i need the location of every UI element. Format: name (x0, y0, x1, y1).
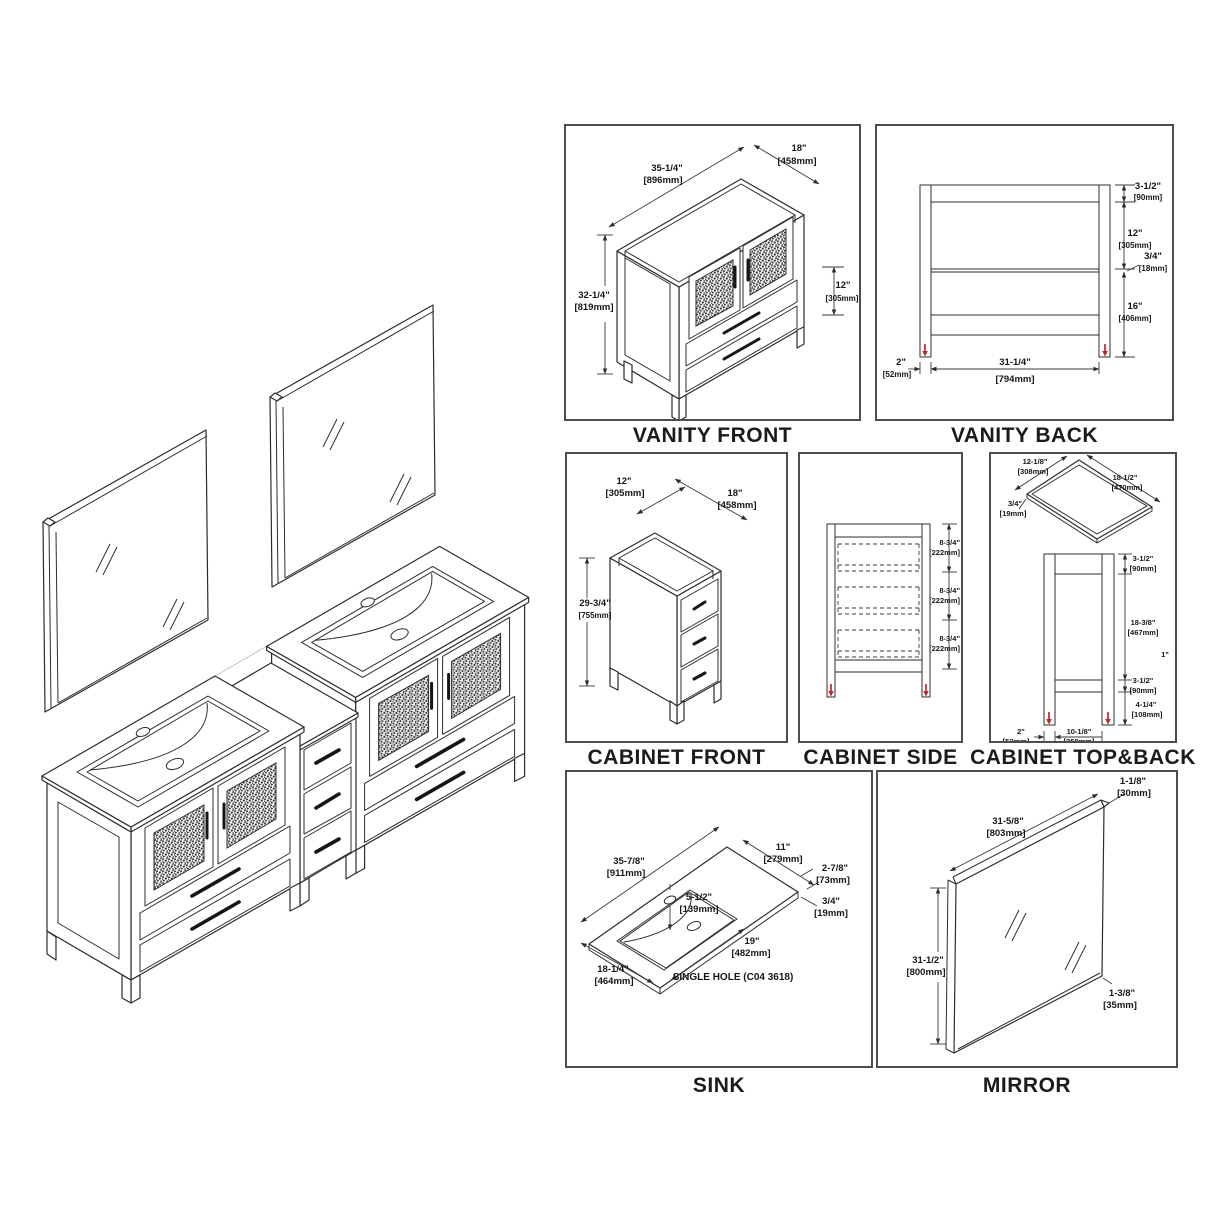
dim-mir-t-mm: [30mm] (1117, 788, 1151, 799)
panel-cabinet-side: 8-3/4" [222mm] 8-3/4" [222mm] 8-3/4" [22… (798, 452, 963, 743)
dim-sink-r-in: 2-7/8" (822, 863, 848, 874)
dim-cs-d2-mm: [222mm] (929, 596, 960, 605)
panel-cabinet-front: 12" [305mm] 18" [458mm] 29-3/4" [755mm] (565, 452, 788, 743)
dim-vf-drawer-mm: [305mm] (826, 294, 859, 303)
dim-mir-f-in: 1-3/8" (1109, 988, 1135, 999)
dim-cf-height-in: 29-3/4" (579, 598, 610, 609)
dim-ctb-stray: 1" (1161, 650, 1169, 659)
dim-ctb-topw-in: 12-1/8" (1023, 457, 1048, 466)
vanity-front-box (617, 179, 804, 419)
dim-sink-bw-mm: [482mm] (731, 948, 770, 959)
dim-sink-r-mm: [73mm] (816, 875, 850, 886)
dim-vb-top-in: 3-1/2" (1135, 181, 1161, 192)
dim-sink-f-mm: [139mm] (679, 904, 718, 915)
dim-cs-d2-in: 8-3/4" (939, 586, 960, 595)
dim-ctb-bspan-in: 10-1/8" (1067, 727, 1092, 736)
dim-ctb-btop-mm: [90mm] (1130, 564, 1157, 573)
mirror-left (43, 430, 208, 712)
dim-vf-depth-mm: [458mm] (777, 156, 816, 167)
dim-cs-d3-in: 8-3/4" (939, 634, 960, 643)
mirror-drawing: 1-1/8" [30mm] 31-5/8" [803mm] 31-1/2" [8… (878, 772, 1176, 1066)
dim-ctb-topw-mm: [308mm] (1018, 467, 1049, 476)
dim-sink-f-in: 5-1/2" (686, 892, 712, 903)
sink-note: SINGLE HOLE (C04 3618) (673, 972, 794, 983)
dim-mir-w-in: 31-5/8" (992, 816, 1023, 827)
dim-sink-d-in: 18-1/4" (597, 964, 628, 975)
panel-sink: 35-7/8" [911mm] 11" [279mm] 2-7/8" [73mm… (565, 770, 873, 1068)
vanity-back-drawing: 3-1/2" [90mm] 12" [305mm] 3/4" [18mm] 16… (877, 126, 1172, 419)
dim-cf-width-in: 12" (616, 476, 631, 487)
title-cabinet-side: CABINET SIDE (798, 746, 963, 770)
dim-vb-span-in: 31-1/4" (999, 357, 1030, 368)
dim-vb-rail-mm: [18mm] (1139, 264, 1168, 273)
dim-vb-span-mm: [794mm] (995, 374, 1034, 385)
dim-vb-leg-mm: [52mm] (883, 370, 912, 379)
dim-cs-d1-mm: [222mm] (929, 548, 960, 557)
drawer-slides-dashed (838, 544, 919, 657)
dim-mir-h-mm: [800mm] (906, 967, 945, 978)
dim-cs-d3-mm: [222mm] (929, 644, 960, 653)
dim-ctb-bleg-mm: [108mm] (1132, 710, 1163, 719)
dim-vb-mid-mm: [305mm] (1119, 241, 1152, 250)
dim-cf-depth-in: 18" (727, 488, 742, 499)
panel-vanity-back: 3-1/2" [90mm] 12" [305mm] 3/4" [18mm] 16… (875, 124, 1174, 421)
dim-ctb-blegw-in: 2" (1017, 727, 1025, 736)
isometric-set-drawing (18, 282, 563, 1057)
mirror-slab (946, 800, 1109, 1053)
dim-vf-width-in: 35-1/4" (651, 163, 682, 174)
dim-sink-d-mm: [464mm] (594, 976, 633, 987)
dim-sink-w-mm: [911mm] (607, 868, 646, 879)
title-mirror: MIRROR (876, 1074, 1178, 1098)
title-sink: SINK (565, 1074, 873, 1098)
title-cabinet-front: CABINET FRONT (565, 746, 788, 770)
cabinet-side-drawing: 8-3/4" [222mm] 8-3/4" [222mm] 8-3/4" [22… (800, 454, 961, 741)
back-frame (1044, 554, 1114, 725)
dim-ctb-blegw-mm: [52mm] (1003, 737, 1030, 741)
dim-cf-width-mm: [305mm] (605, 488, 644, 499)
title-vanity-front: VANITY FRONT (564, 424, 861, 448)
cabinet-front-box (610, 533, 721, 724)
panel-vanity-front: 35-1/4" [896mm] 18" [458mm] 32-1/4" [819… (564, 124, 861, 421)
dim-sink-bw-in: 19" (744, 936, 759, 947)
dim-vf-height-mm: [819mm] (574, 302, 613, 313)
dim-mir-w-mm: [803mm] (986, 828, 1025, 839)
dim-cs-d1-in: 8-3/4" (939, 538, 960, 547)
dim-vb-top-mm: [90mm] (1134, 193, 1163, 202)
dim-vf-drawer-in: 12" (835, 280, 850, 291)
cabinet-top-back-drawing: 12-1/8" [308mm] 18-1/2" [470mm] 3/4" [19… (991, 454, 1175, 741)
panel-mirror: 1-1/8" [30mm] 31-5/8" [803mm] 31-1/2" [8… (876, 770, 1178, 1068)
vanity-left (42, 676, 304, 1003)
dim-cf-height-mm: [755mm] (579, 611, 612, 620)
dim-ctb-bleg-in: 4-1/4" (1136, 700, 1157, 709)
dim-ctb-btop-in: 3-1/2" (1133, 554, 1154, 563)
vanity-front-drawing: 35-1/4" [896mm] 18" [458mm] 32-1/4" [819… (566, 126, 859, 419)
dim-sink-w-in: 35-7/8" (613, 856, 644, 867)
spec-sheet: 35-1/4" [896mm] 18" [458mm] 32-1/4" [819… (0, 0, 1214, 1214)
panel-cabinet-top-back: 12-1/8" [308mm] 18-1/2" [470mm] 3/4" [19… (989, 452, 1177, 743)
dim-mir-f-mm: [35mm] (1103, 1000, 1137, 1011)
dim-sink-thk-in: 3/4" (822, 896, 840, 907)
dim-ctb-bmid-in: 18-3/8" (1131, 618, 1156, 627)
dim-cf-depth-mm: [458mm] (717, 500, 756, 511)
dim-vf-height-in: 32-1/4" (578, 290, 609, 301)
dim-ctb-thk-in: 3/4" (1008, 499, 1022, 508)
cabinet-front-drawing: 12" [305mm] 18" [458mm] 29-3/4" [755mm] (567, 454, 786, 741)
dim-vb-mid-in: 12" (1127, 228, 1142, 239)
dim-ctb-thk-mm: [19mm] (1000, 509, 1027, 518)
dim-ctb-bmid-mm: [467mm] (1128, 628, 1159, 637)
mirror-right (270, 305, 435, 587)
dim-vf-depth-in: 18" (791, 143, 806, 154)
dim-mir-h-in: 31-1/2" (912, 955, 943, 966)
dim-vb-low-mm: [406mm] (1119, 314, 1152, 323)
dim-sink-bk-in: 11" (776, 842, 791, 853)
title-cabinet-top-back: CABINET TOP&BACK (963, 746, 1203, 770)
dim-ctb-topd-in: 18-1/2" (1113, 473, 1138, 482)
dim-vb-low-in: 16" (1127, 301, 1142, 312)
dim-ctb-bspan-mm: [258mm] (1064, 737, 1095, 741)
sink-drawing: 35-7/8" [911mm] 11" [279mm] 2-7/8" [73mm… (567, 772, 871, 1066)
dim-vb-leg-in: 2" (896, 357, 906, 368)
dim-ctb-blow-in: 3-1/2" (1133, 676, 1154, 685)
dim-vb-rail-in: 3/4" (1144, 251, 1162, 262)
dim-mir-t-in: 1-1/8" (1120, 776, 1146, 787)
dim-ctb-topd-mm: [470mm] (1112, 483, 1143, 492)
dim-vf-width-mm: [896mm] (643, 175, 682, 186)
dim-sink-bk-mm: [279mm] (763, 854, 802, 865)
dim-sink-thk-mm: [19mm] (814, 908, 848, 919)
title-vanity-back: VANITY BACK (875, 424, 1174, 448)
dim-ctb-blow-mm: [90mm] (1130, 686, 1157, 695)
